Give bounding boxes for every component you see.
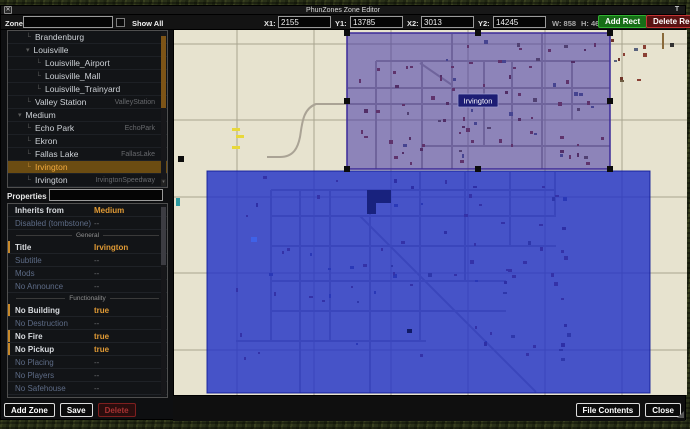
tree-branch-icon: └ — [36, 86, 41, 93]
property-value: true — [94, 332, 109, 341]
property-row-no-building[interactable]: No Buildingtrue — [8, 304, 167, 317]
tree-item-echo-park[interactable]: └Echo ParkEchoPark — [8, 122, 167, 135]
tree-branch-icon: └ — [26, 99, 31, 106]
properties-scrollbar[interactable] — [161, 205, 166, 396]
tree-item-id: IrvingtonSpeedway — [95, 177, 155, 184]
tree-branch-icon: └ — [26, 138, 31, 145]
selection-handle[interactable] — [344, 98, 350, 104]
tree-item-louisville-trainyard[interactable]: └Louisville_Trainyard — [8, 83, 167, 96]
property-row-no-players[interactable]: No Players-- — [8, 369, 167, 382]
y2-input[interactable] — [493, 16, 546, 28]
property-row-inherits-from[interactable]: Inherits fromMedium — [8, 204, 167, 217]
close-button[interactable]: Close — [645, 403, 681, 417]
properties-scrollbar-thumb[interactable] — [161, 207, 166, 265]
tree-item-louisville-mall[interactable]: └Louisville_Mall — [8, 70, 167, 83]
show-all-checkbox[interactable] — [116, 18, 125, 27]
tree-item-label: Brandenburg — [35, 32, 84, 42]
rect-width-readout: W: 858 — [552, 19, 576, 28]
property-value: -- — [94, 256, 99, 265]
property-value: -- — [94, 371, 99, 380]
active-property-bar — [8, 304, 10, 316]
tree-scrollbar-thumb[interactable] — [161, 36, 166, 108]
tree-branch-icon: └ — [26, 34, 31, 41]
property-label: No Placing — [15, 358, 54, 367]
property-row-subtitle[interactable]: Subtitle-- — [8, 254, 167, 267]
tree-item-label: Fallas Lake — [35, 149, 78, 159]
property-value: -- — [94, 282, 99, 291]
selection-handle[interactable] — [344, 166, 350, 172]
tree-item-louisville[interactable]: ▾Louisville — [8, 44, 167, 57]
tree-branch-icon: └ — [26, 125, 31, 132]
tree-item-label: Valley Station — [35, 97, 86, 107]
property-label: No Safehouse — [15, 384, 66, 393]
y1-input[interactable] — [350, 16, 403, 28]
property-label: No Announce — [15, 282, 63, 291]
tree-item-fallas-lake[interactable]: └Fallas LakeFallasLake — [8, 148, 167, 161]
zone-badge: Irvington — [458, 94, 498, 107]
properties-panel: Inherits fromMediumDisabled (tombstone)-… — [7, 203, 168, 398]
x1-label: X1: — [264, 19, 276, 28]
property-value: true — [94, 306, 109, 315]
properties-title: Properties — [7, 192, 47, 201]
toolbar: Zones Show All X1: Y1: X2: Y2: W: 858 H:… — [1, 15, 685, 30]
file-contents-button[interactable]: File Contents — [576, 403, 641, 417]
tree-branch-icon: └ — [26, 177, 31, 184]
tree-branch-icon: └ — [36, 73, 41, 80]
section-divider-general: General — [8, 230, 167, 241]
property-row-disabled-tombstone-[interactable]: Disabled (tombstone)-- — [8, 217, 167, 230]
window-title: PhunZones Zone Editor — [1, 6, 685, 15]
active-property-bar — [8, 343, 10, 355]
property-row-no-placing[interactable]: No Placing-- — [8, 356, 167, 369]
tree-item-id: ValleyStation — [115, 99, 155, 106]
selection-handle[interactable] — [607, 30, 613, 36]
property-label: Inherits from — [15, 206, 64, 215]
property-label: Subtitle — [15, 256, 42, 265]
tree-item-medium[interactable]: ▾Medium — [8, 109, 167, 122]
zone-rect-blue[interactable] — [207, 171, 650, 393]
y2-label: Y2: — [478, 19, 490, 28]
property-value: -- — [94, 384, 99, 393]
tree-item-brandenburg[interactable]: └Brandenburg — [8, 31, 167, 44]
property-value: -- — [94, 319, 99, 328]
property-label: Mods — [15, 269, 35, 278]
titlebar: ✕ PhunZones Zone Editor T — [1, 6, 685, 15]
x2-label: X2: — [407, 19, 419, 28]
map-canvas[interactable]: Irvington — [173, 30, 686, 395]
active-property-bar — [8, 241, 10, 253]
delete-rect-button[interactable]: Delete Rect — [646, 15, 690, 28]
property-label: Disabled (tombstone) — [15, 219, 91, 228]
selection-handle[interactable] — [475, 30, 481, 36]
y1-label: Y1: — [335, 19, 347, 28]
property-label: No Fire — [15, 332, 43, 341]
zone-tree-panel: └Brandenburg▾Louisville└Louisville_Airpo… — [7, 30, 168, 188]
scroll-down-icon[interactable]: ▾ — [161, 179, 166, 186]
properties-filter-input[interactable] — [49, 189, 163, 201]
property-row-no-announce[interactable]: No Announce-- — [8, 280, 167, 293]
tree-item-irvington[interactable]: └Irvington — [8, 161, 167, 174]
property-label: No Destruction — [15, 319, 68, 328]
tree-item-label: Echo Park — [35, 123, 74, 133]
tree-branch-icon: └ — [26, 151, 31, 158]
tree-item-id: FallasLake — [121, 151, 155, 158]
property-row-no-pickup[interactable]: No Pickuptrue — [8, 343, 167, 356]
add-rect-button[interactable]: Add Rect — [598, 15, 647, 28]
tree-item-ekron[interactable]: └Ekron — [8, 135, 167, 148]
tree-item-id: EchoPark — [125, 125, 155, 132]
tree-item-valley-station[interactable]: └Valley StationValleyStation — [8, 96, 167, 109]
tree-item-label: Louisville_Airport — [45, 58, 110, 68]
property-row-no-fire[interactable]: No Firetrue — [8, 330, 167, 343]
expander-icon[interactable]: ▾ — [18, 111, 22, 119]
phunzones-editor-window: ✕ PhunZones Zone Editor T Zones Show All… — [0, 5, 686, 420]
property-value: true — [94, 345, 109, 354]
x2-input[interactable] — [421, 16, 474, 28]
resize-grip[interactable] — [677, 411, 684, 418]
tree-item-label: Louisville_Mall — [45, 71, 100, 81]
property-value: Irvington — [94, 243, 128, 252]
tree-item-irvington[interactable]: └IrvingtonIrvingtonSpeedway — [8, 174, 167, 187]
zone-tree-list: └Brandenburg▾Louisville└Louisville_Airpo… — [8, 31, 167, 187]
tree-scrollbar[interactable] — [161, 32, 166, 186]
selection-handle[interactable] — [475, 166, 481, 172]
add-zone-button[interactable]: Add Zone — [4, 403, 55, 417]
pin-icon[interactable]: T — [673, 6, 681, 14]
selection-handle[interactable] — [607, 166, 613, 172]
property-value: -- — [94, 269, 99, 278]
zones-filter-input[interactable] — [23, 16, 113, 28]
zone-badge-label: Irvington — [464, 97, 493, 106]
save-button[interactable]: Save — [60, 403, 93, 417]
tree-item-label: Irvington — [35, 175, 68, 185]
active-property-bar — [8, 330, 10, 342]
tree-branch-icon: └ — [26, 164, 31, 171]
x1-input[interactable] — [278, 16, 331, 28]
footer-right-buttons: File Contents Close — [576, 403, 681, 417]
property-label: Title — [15, 243, 31, 252]
property-value: -- — [94, 358, 99, 367]
property-label: No Building — [15, 306, 60, 315]
tree-item-louisville-airport[interactable]: └Louisville_Airport — [8, 57, 167, 70]
show-all-button[interactable]: Show All — [132, 19, 163, 28]
property-value: -- — [94, 219, 99, 228]
tree-branch-icon: └ — [36, 60, 41, 67]
expander-icon[interactable]: ▾ — [26, 46, 30, 54]
property-row-no-safehouse[interactable]: No Safehouse-- — [8, 382, 167, 395]
footer-left-buttons: Add Zone Save Delete — [4, 403, 136, 417]
section-divider-functionality: Functionality — [8, 293, 167, 304]
property-row-title[interactable]: TitleIrvington — [8, 241, 167, 254]
property-label: No Pickup — [15, 345, 54, 354]
tree-item-label: Medium — [26, 110, 56, 120]
tree-item-label: Louisville_Trainyard — [45, 84, 120, 94]
tree-item-label: Ekron — [35, 136, 57, 146]
property-value: Medium — [94, 206, 124, 215]
selection-handle[interactable] — [344, 30, 350, 36]
delete-zone-button[interactable]: Delete — [98, 403, 136, 417]
tree-item-label: Louisville — [34, 45, 69, 55]
property-row-mods[interactable]: Mods-- — [8, 267, 167, 280]
property-label: No Players — [15, 371, 54, 380]
tree-item-label: Irvington — [35, 162, 68, 172]
selection-handle[interactable] — [607, 98, 613, 104]
property-row-no-destruction[interactable]: No Destruction-- — [8, 317, 167, 330]
properties-list: Inherits fromMediumDisabled (tombstone)-… — [8, 204, 167, 395]
